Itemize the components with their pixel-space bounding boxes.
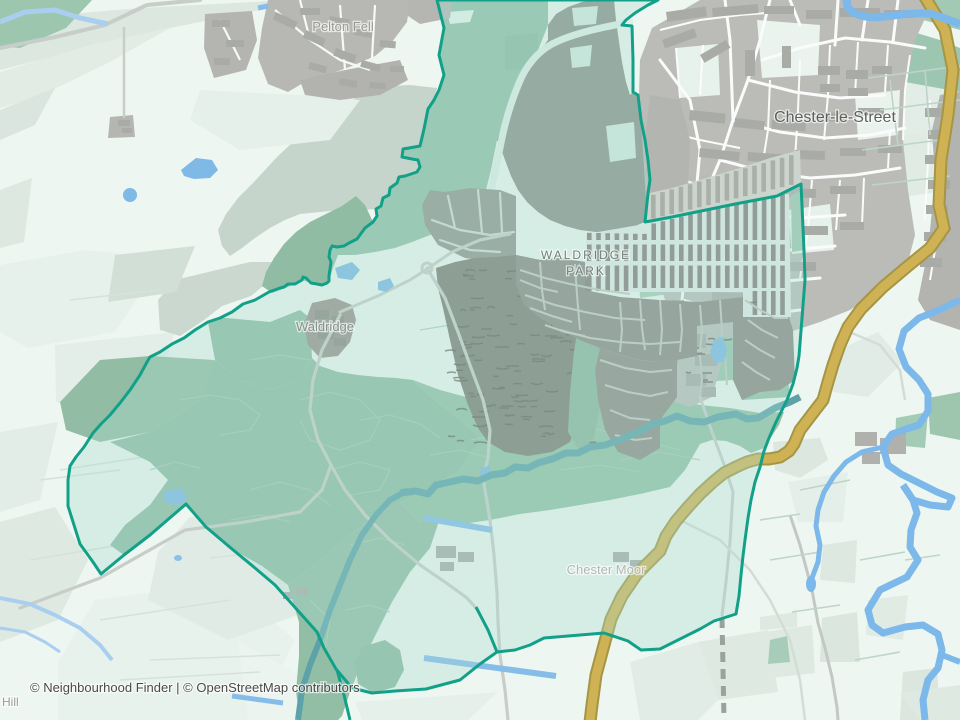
svg-text:Pelton Fell: Pelton Fell	[312, 19, 374, 34]
svg-text:WALDRIDGE: WALDRIDGE	[541, 248, 631, 262]
svg-text:© Neighbourhood Finder | © Ope: © Neighbourhood Finder | © OpenStreetMap…	[30, 680, 360, 695]
svg-text:Waldridge: Waldridge	[296, 319, 354, 334]
svg-text:PARK: PARK	[566, 264, 606, 278]
svg-text:Chester-le-Street: Chester-le-Street	[774, 109, 896, 126]
svg-text:Hill: Hill	[2, 695, 19, 709]
svg-text:Chester Moor: Chester Moor	[567, 562, 646, 577]
